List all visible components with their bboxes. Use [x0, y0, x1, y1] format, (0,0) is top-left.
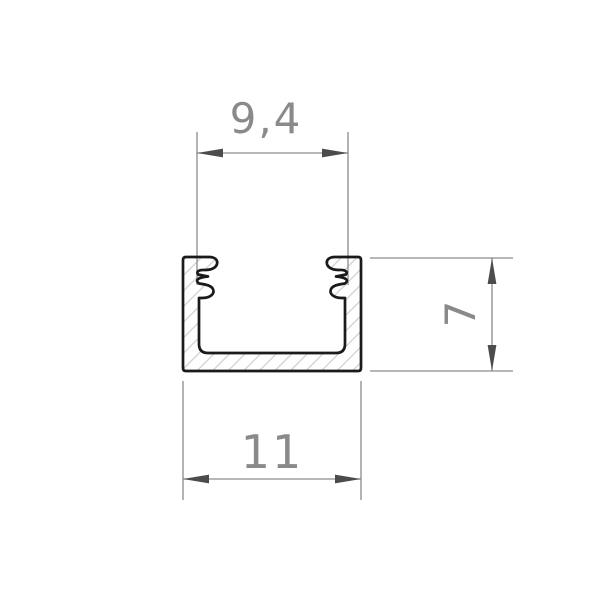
- profile-cross-section-outline: [183, 257, 361, 371]
- dimension-label-height: 7: [436, 299, 485, 328]
- dimension-bottom-width: 11: [183, 381, 361, 500]
- arrowhead-right: [322, 149, 348, 158]
- arrowhead-left: [197, 149, 223, 158]
- arrowhead-up: [488, 258, 497, 284]
- dimension-label-top-width: 9,4: [230, 94, 303, 143]
- dimension-label-bottom-width: 11: [241, 425, 304, 479]
- profile-dimension-drawing: 9,4 7 11: [0, 0, 600, 600]
- dimension-top-width: 9,4: [197, 94, 348, 285]
- arrowhead-down: [488, 345, 497, 371]
- arrowhead-left: [183, 475, 209, 484]
- dimension-height: 7: [370, 258, 513, 371]
- technical-drawing-canvas: 9,4 7 11: [0, 0, 600, 600]
- arrowhead-right: [335, 475, 361, 484]
